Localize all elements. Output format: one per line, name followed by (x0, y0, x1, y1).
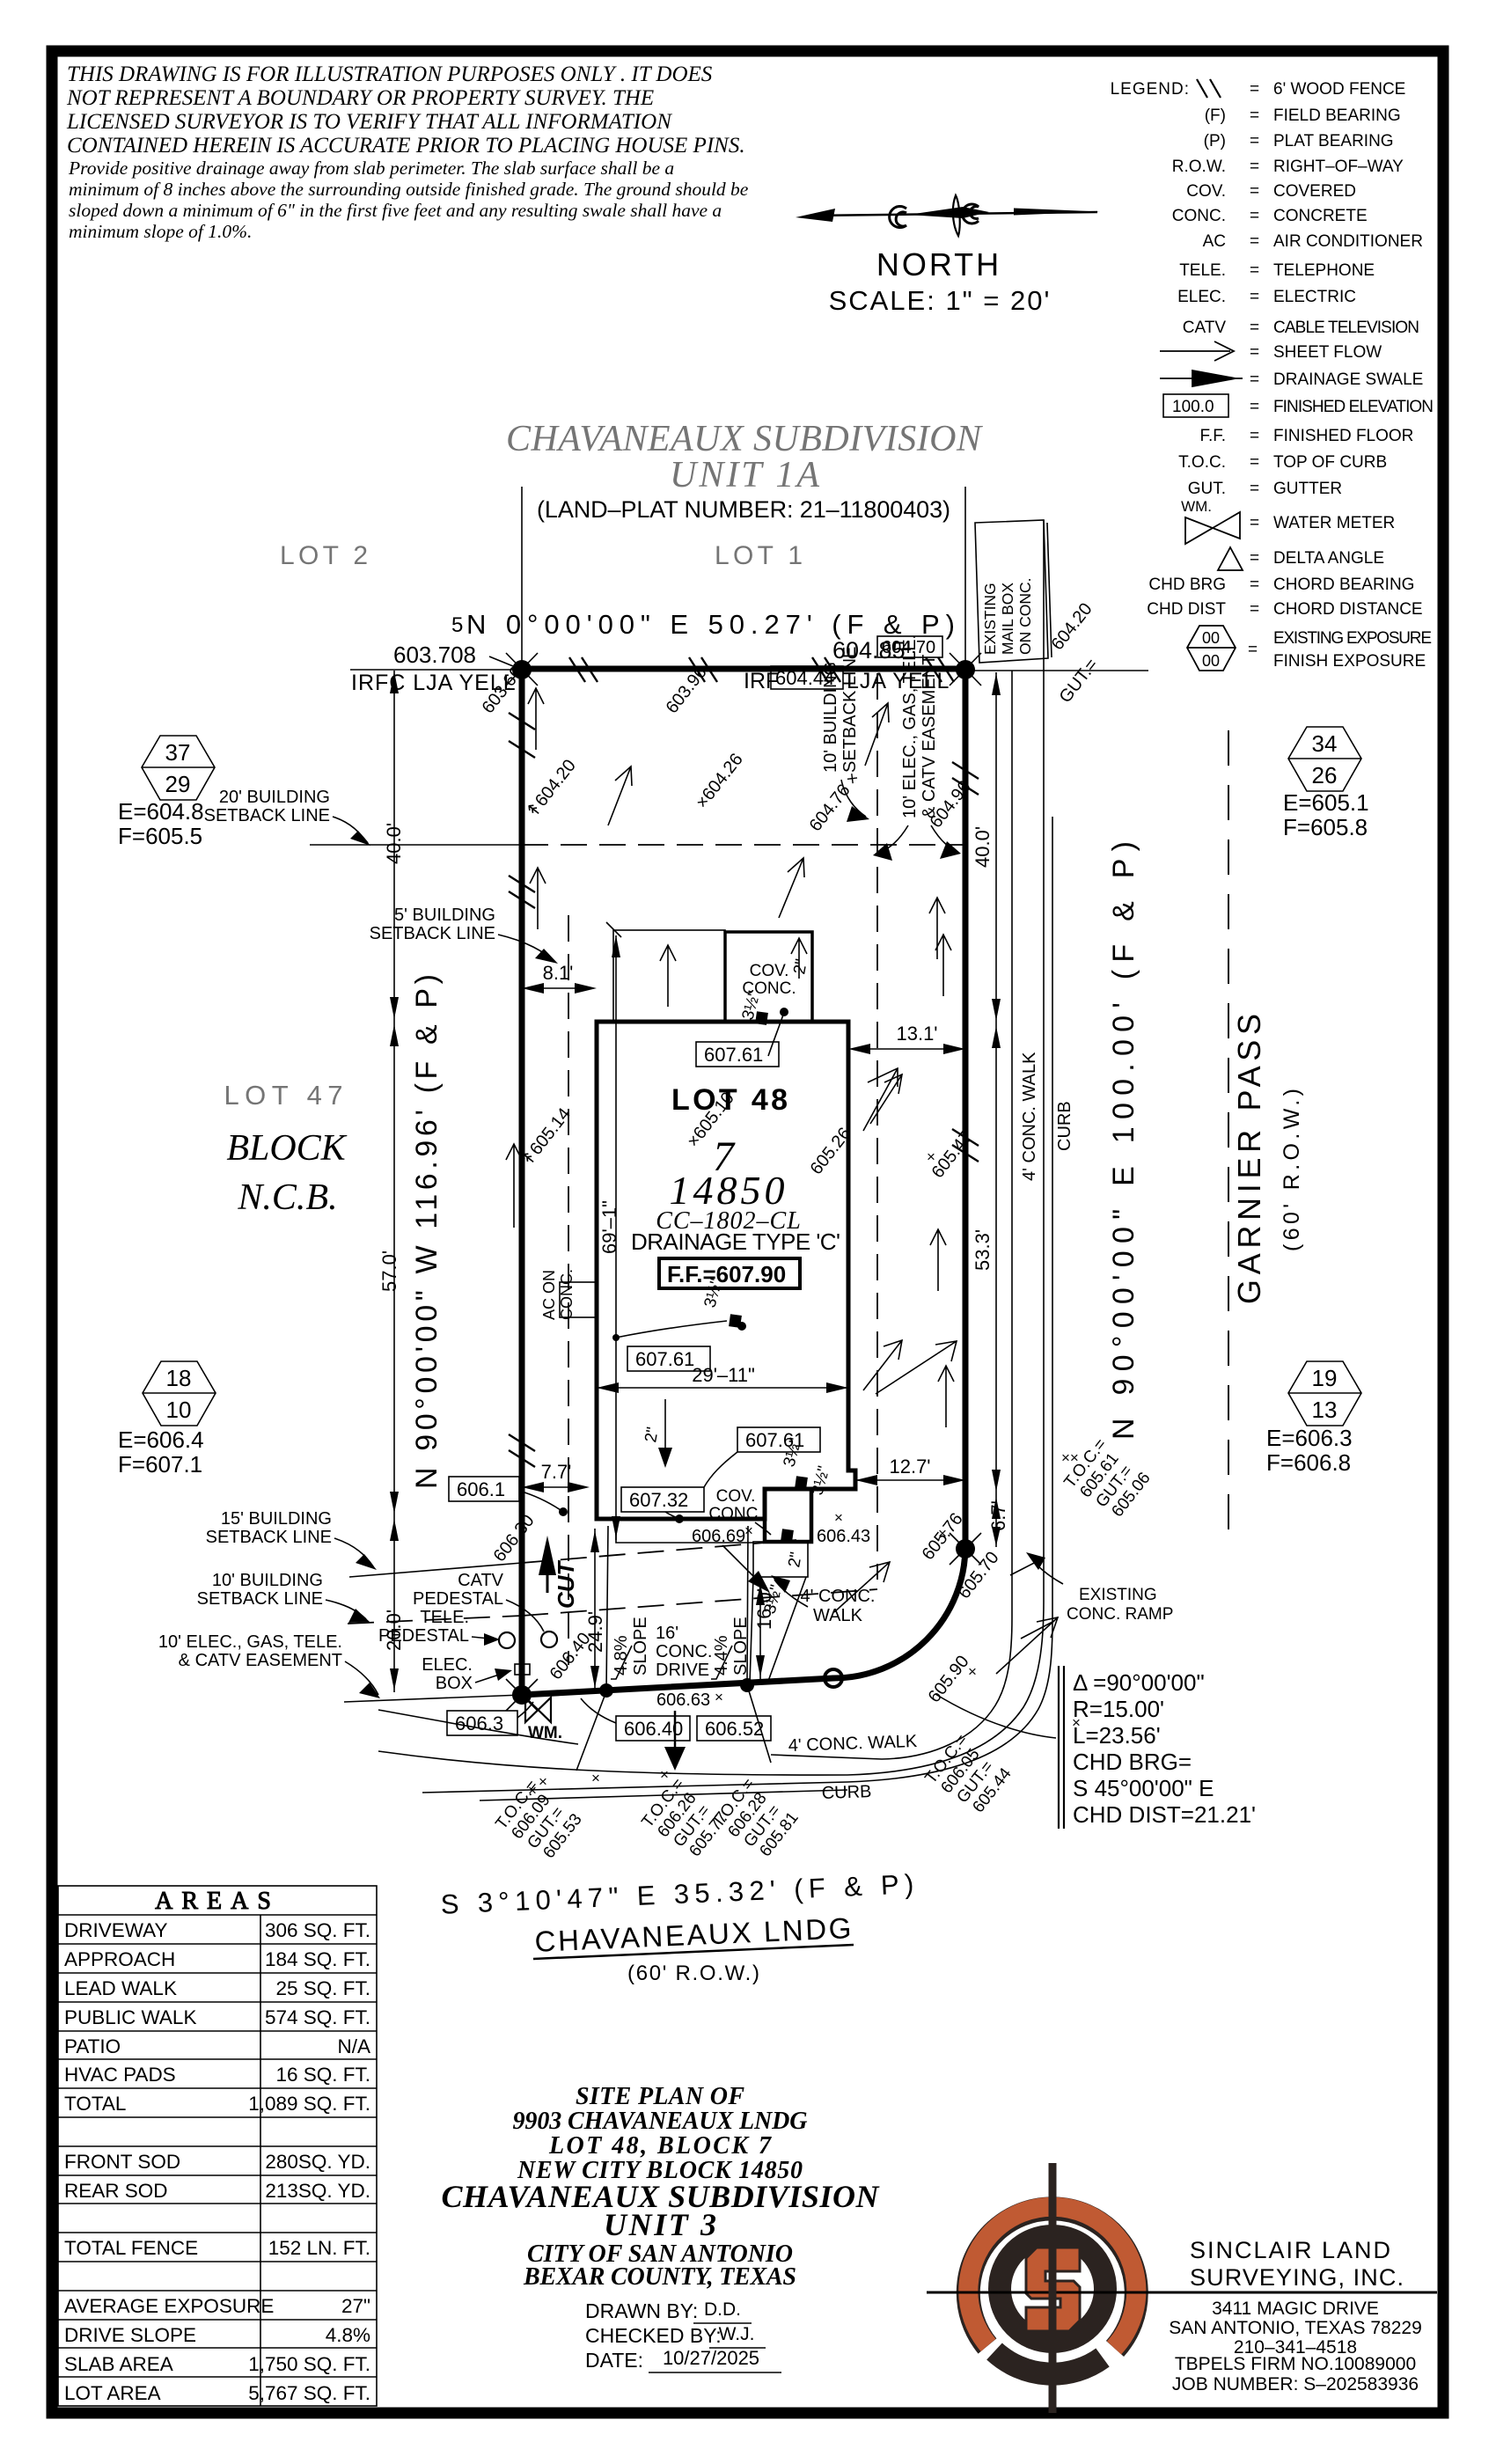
svg-text:×: × (927, 1148, 935, 1165)
svg-text:LEGEND:: LEGEND: (1111, 80, 1190, 99)
svg-text:AREAS: AREAS (155, 1888, 280, 1915)
svg-text:53.3': 53.3' (972, 1229, 994, 1271)
svg-text:TOP OF CURB: TOP OF CURB (1273, 453, 1387, 472)
svg-text:CHORD DISTANCE: CHORD DISTANCE (1273, 600, 1423, 619)
svg-text:606.43: 606.43 (817, 1527, 870, 1546)
svg-text:100.0: 100.0 (1172, 398, 1214, 416)
svg-text:69'–1": 69'–1" (598, 1200, 620, 1254)
svg-text:26: 26 (1312, 762, 1338, 788)
svg-text:606.63: 606.63 (656, 1690, 710, 1710)
svg-text:FINISH EXPOSURE: FINISH EXPOSURE (1273, 652, 1426, 671)
svg-text:CONC. RAMP: CONC. RAMP (1067, 1605, 1173, 1624)
svg-text:FINISHED FLOOR: FINISHED FLOOR (1273, 427, 1413, 445)
svg-text:(P): (P) (1204, 132, 1226, 150)
svg-text:L=23.56': L=23.56' (1073, 1722, 1161, 1749)
svg-text:=: = (1250, 514, 1259, 532)
svg-text:TELEPHONE: TELEPHONE (1273, 261, 1375, 280)
svg-text:CHAVANEAUX SUBDIVISION: CHAVANEAUX SUBDIVISION (506, 419, 983, 459)
svg-text:SITE PLAN OF: SITE PLAN OF (576, 2083, 744, 2110)
svg-text:SETBACK LINE: SETBACK LINE (206, 1528, 332, 1547)
svg-text:00: 00 (1202, 652, 1220, 670)
svg-text:16': 16' (656, 1624, 678, 1643)
svg-text:606.40: 606.40 (624, 1718, 683, 1740)
svg-text:W.J.: W.J. (719, 2324, 755, 2344)
svg-text:4.8%: 4.8% (326, 2324, 370, 2346)
svg-text:GARNIER PASS: GARNIER PASS (1231, 1014, 1267, 1304)
svg-text:TBPELS FIRM NO.10089000: TBPELS FIRM NO.10089000 (1175, 2354, 1416, 2374)
svg-text:LOT 2: LOT 2 (280, 541, 368, 570)
svg-text:=: = (1250, 427, 1259, 445)
svg-text:34: 34 (1312, 730, 1338, 757)
svg-text:00: 00 (1202, 629, 1220, 647)
svg-text:DRAINAGE TYPE 'C': DRAINAGE TYPE 'C' (631, 1228, 840, 1255)
svg-text:18: 18 (166, 1365, 192, 1391)
svg-text:TOTAL FENCE: TOTAL FENCE (64, 2237, 198, 2259)
svg-text:606.69: 606.69 (692, 1527, 745, 1546)
svg-text:=: = (1250, 288, 1259, 306)
svg-text:TOTAL: TOTAL (64, 2093, 126, 2115)
svg-text:607.32: 607.32 (629, 1489, 688, 1511)
svg-text:TELE.: TELE. (420, 1608, 469, 1627)
svg-text:280SQ. YD.: 280SQ. YD. (265, 2151, 370, 2173)
svg-text:F.F.=607.90: F.F.=607.90 (667, 1261, 786, 1287)
svg-text:CURB: CURB (1055, 1101, 1074, 1151)
svg-text:213SQ. YD.: 213SQ. YD. (265, 2180, 370, 2202)
svg-text:TELE.: TELE. (1179, 261, 1226, 280)
svg-text:FRONT SOD: FRONT SOD (64, 2151, 180, 2173)
svg-text:BLOCK: BLOCK (226, 1128, 347, 1169)
svg-text:603.708: 603.708 (393, 642, 476, 668)
svg-text:CONC.: CONC. (1172, 207, 1226, 225)
svg-text:E=605.1: E=605.1 (1283, 789, 1369, 816)
svg-text:minimum of 8 inches above the: minimum of 8 inches above the surroundin… (69, 179, 749, 200)
svg-text:F=606.8: F=606.8 (1266, 1449, 1351, 1476)
svg-text:DELTA ANGLE: DELTA ANGLE (1273, 549, 1384, 568)
svg-text:DATE:: DATE: (585, 2349, 643, 2372)
svg-text:×: × (528, 1782, 537, 1799)
svg-text:CATV: CATV (1183, 319, 1227, 337)
svg-text:& CATV EASEMENT: & CATV EASEMENT (179, 1651, 342, 1670)
svg-text:DRIVE SLOPE: DRIVE SLOPE (64, 2324, 196, 2346)
svg-text:19: 19 (1312, 1365, 1338, 1391)
svg-text:606.1: 606.1 (457, 1478, 505, 1500)
svg-text:=: = (1248, 641, 1258, 659)
svg-text:HVAC PADS: HVAC PADS (64, 2064, 176, 2086)
svg-text:CONC.: CONC. (558, 1269, 576, 1320)
svg-text:1,750 SQ. FT.: 1,750 SQ. FT. (248, 2353, 370, 2375)
svg-text:R.O.W.: R.O.W. (1172, 158, 1226, 176)
svg-text:CHD BRG=: CHD BRG= (1073, 1749, 1192, 1775)
svg-text:CABLE TELEVISION: CABLE TELEVISION (1273, 319, 1419, 337)
svg-text:5,767 SQ. FT.: 5,767 SQ. FT. (248, 2382, 370, 2404)
svg-text:CONTAINED HEREIN IS ACCURATE P: CONTAINED HEREIN IS ACCURATE PRIOR TO PL… (67, 134, 745, 158)
svg-text:606.3: 606.3 (455, 1712, 503, 1734)
svg-text:2": 2" (790, 957, 811, 976)
svg-text:CUT: CUT (553, 1559, 579, 1609)
svg-text:DRAINAGE SWALE: DRAINAGE SWALE (1273, 370, 1423, 389)
svg-text:WM.: WM. (1181, 498, 1212, 515)
svg-text:10' ELEC., GAS, TELE.: 10' ELEC., GAS, TELE. (900, 634, 920, 818)
svg-text:DRAWN BY:: DRAWN BY: (585, 2299, 698, 2322)
svg-text:THIS DRAWING IS FOR ILLUSTRATI: THIS DRAWING IS FOR ILLUSTRATION PURPOSE… (67, 62, 713, 86)
svg-text:CONCRETE: CONCRETE (1273, 207, 1368, 225)
svg-text:184 SQ. FT.: 184 SQ. FT. (265, 1948, 370, 1970)
svg-text:NORTH: NORTH (876, 246, 1001, 282)
svg-text:COVERED: COVERED (1273, 182, 1356, 201)
svg-text:××: ×× (1061, 1449, 1079, 1466)
svg-text:T.O.C.: T.O.C. (1178, 453, 1226, 472)
svg-text:FINISHED ELEVATION: FINISHED ELEVATION (1273, 398, 1434, 416)
svg-text:5' BUILDING: 5' BUILDING (394, 906, 495, 925)
svg-text:20.0': 20.0' (383, 1610, 405, 1651)
svg-text:FIELD BEARING: FIELD BEARING (1273, 106, 1401, 125)
svg-text:=: = (1250, 370, 1259, 389)
svg-text:2": 2" (642, 1426, 663, 1444)
svg-text:×: × (834, 1509, 843, 1526)
svg-text:×: × (968, 1663, 977, 1680)
svg-text:AIR CONDITIONER: AIR CONDITIONER (1273, 232, 1423, 251)
svg-text:5: 5 (451, 613, 463, 637)
svg-text:=: = (1250, 182, 1259, 201)
svg-text:=: = (1250, 398, 1259, 416)
svg-text:9903 CHAVANEAUX LNDG: 9903 CHAVANEAUX LNDG (513, 2108, 808, 2135)
svg-text:BEXAR COUNTY, TEXAS: BEXAR COUNTY, TEXAS (523, 2263, 796, 2291)
svg-text:16.0': 16.0' (753, 1588, 775, 1630)
svg-text:N.C.B.: N.C.B. (237, 1177, 337, 1218)
svg-text:(60' R.O.W.): (60' R.O.W.) (627, 1962, 759, 1985)
svg-text:10' ELEC., GAS, TELE.: 10' ELEC., GAS, TELE. (158, 1632, 342, 1652)
svg-text:20' BUILDING: 20' BUILDING (219, 788, 330, 807)
svg-text:7.7': 7.7' (541, 1461, 572, 1483)
svg-text:=: = (1250, 106, 1259, 125)
svg-text:minimum slope of 1.0%.: minimum slope of 1.0%. (69, 221, 252, 242)
svg-text:E=606.4: E=606.4 (118, 1426, 204, 1453)
svg-text:SLAB AREA: SLAB AREA (64, 2353, 173, 2375)
svg-text:Δ =90°00'00": Δ =90°00'00" (1073, 1669, 1205, 1696)
svg-text:27": 27" (341, 2295, 370, 2317)
svg-text:F=605.5: F=605.5 (118, 823, 202, 849)
svg-text:BOX: BOX (436, 1674, 473, 1693)
svg-text:4' CONC.: 4' CONC. (801, 1587, 876, 1606)
svg-text:PATIO: PATIO (64, 2035, 121, 2057)
svg-text:15' BUILDING: 15' BUILDING (221, 1509, 332, 1529)
svg-text:ELECTRIC: ELECTRIC (1273, 288, 1356, 306)
svg-text:SAN ANTONIO, TEXAS 78229: SAN ANTONIO, TEXAS 78229 (1169, 2318, 1422, 2338)
svg-text:S 45°00'00" E: S 45°00'00" E (1073, 1775, 1214, 1801)
svg-text:LOT 1: LOT 1 (715, 541, 803, 570)
svg-text:EXISTING: EXISTING (1079, 1586, 1157, 1604)
svg-text:CATV: CATV (458, 1571, 504, 1590)
svg-text:PUBLIC WALK: PUBLIC WALK (64, 2006, 196, 2028)
svg-text:13: 13 (1312, 1397, 1338, 1423)
svg-text:SLOPE: SLOPE (631, 1617, 650, 1676)
svg-text:ELEC.: ELEC. (1177, 288, 1226, 306)
svg-text:SCALE: 1" = 20': SCALE: 1" = 20' (829, 285, 1052, 316)
svg-text:R=15.00': R=15.00' (1073, 1696, 1164, 1722)
svg-text:ON CONC.: ON CONC. (1016, 578, 1034, 656)
svg-text:F=607.1: F=607.1 (118, 1451, 202, 1478)
svg-text:REAR SOD: REAR SOD (64, 2180, 168, 2202)
svg-text:=: = (1250, 80, 1259, 99)
svg-text:E=604.8: E=604.8 (118, 798, 204, 825)
svg-text:607.61: 607.61 (635, 1348, 694, 1370)
svg-text:N/A: N/A (337, 2035, 370, 2057)
svg-text:=: = (1250, 343, 1259, 362)
svg-text:LOT AREA: LOT AREA (64, 2382, 161, 2404)
svg-text:607.61: 607.61 (704, 1044, 763, 1066)
svg-text:10: 10 (166, 1397, 192, 1423)
svg-text:APPROACH: APPROACH (64, 1948, 175, 1970)
svg-text:F.F.: F.F. (1199, 427, 1226, 445)
svg-text:NOT REPRESENT A BOUNDARY OR PR: NOT REPRESENT A BOUNDARY OR PROPERTY SUR… (66, 86, 654, 110)
svg-text:=: = (1250, 132, 1259, 150)
svg-text:UNIT 1A: UNIT 1A (670, 455, 819, 495)
svg-text:=: = (1250, 207, 1259, 225)
svg-text:PEDESTAL: PEDESTAL (413, 1589, 503, 1609)
svg-text:WATER METER: WATER METER (1273, 514, 1395, 532)
svg-text:LEAD WALK: LEAD WALK (64, 1977, 177, 1999)
svg-text:3411 MAGIC DRIVE: 3411 MAGIC DRIVE (1212, 2299, 1379, 2319)
svg-text:10' BUILDING: 10' BUILDING (821, 662, 840, 773)
svg-text:JOB NUMBER: S–202583936: JOB NUMBER: S–202583936 (1172, 2374, 1419, 2394)
svg-text:SURVEYING, INC.: SURVEYING, INC. (1190, 2264, 1404, 2291)
svg-text:CONC.: CONC. (656, 1642, 712, 1661)
svg-text:40.0': 40.0' (972, 826, 994, 868)
svg-text:SETBACK LINE: SETBACK LINE (197, 1589, 323, 1609)
svg-text:AC ON: AC ON (540, 1270, 558, 1320)
svg-text:MAIL BOX: MAIL BOX (999, 583, 1016, 655)
svg-text:LICENSED SURVEYOR IS TO VERIFY: LICENSED SURVEYOR IS TO VERIFY THAT ALL … (66, 110, 672, 134)
svg-text:=: = (1250, 480, 1259, 498)
svg-text:=: = (1250, 600, 1259, 619)
svg-text:GUTTER: GUTTER (1273, 480, 1342, 498)
svg-text:DRIVEWAY: DRIVEWAY (64, 1919, 168, 1941)
svg-text:6.7': 6.7' (987, 1500, 1009, 1531)
svg-text:57.0': 57.0' (378, 1250, 400, 1292)
svg-text:SINCLAIR LAND: SINCLAIR LAND (1190, 2237, 1390, 2263)
svg-text:ELEC.: ELEC. (422, 1655, 473, 1675)
svg-text:(LAND–PLAT NUMBER: 21–118004: (LAND–PLAT NUMBER: 21–11800403) (537, 496, 950, 523)
svg-text:SLOPE: SLOPE (731, 1617, 751, 1676)
svg-text:×: × (938, 1525, 947, 1542)
svg-text:37: 37 (165, 739, 191, 766)
svg-text:12.7': 12.7' (889, 1456, 930, 1478)
svg-text:6' WOOD FENCE: 6' WOOD FENCE (1273, 80, 1405, 99)
svg-text:sloped down a minimum of 6" in: sloped down a minimum of 6" in the first… (69, 200, 722, 221)
svg-text:SHEET FLOW: SHEET FLOW (1273, 343, 1382, 362)
svg-text:EXISTING: EXISTING (981, 583, 999, 655)
svg-text:LOT 48, BLOCK 7: LOT 48, BLOCK 7 (548, 2132, 772, 2160)
svg-text:8.1': 8.1' (543, 962, 574, 984)
svg-text:×: × (715, 1689, 723, 1705)
svg-text:=: = (1250, 261, 1259, 280)
svg-text:29'–11": 29'–11" (692, 1364, 755, 1386)
svg-text:CHORD BEARING: CHORD BEARING (1273, 576, 1414, 594)
svg-text:10/27/2025: 10/27/2025 (663, 2347, 759, 2369)
svg-text:=: = (1250, 576, 1259, 594)
svg-text:AVERAGE EXPOSURE: AVERAGE EXPOSURE (64, 2295, 274, 2317)
svg-text:COV.: COV. (716, 1487, 756, 1506)
svg-text:40.0': 40.0' (383, 823, 405, 864)
svg-text:SETBACK LINE: SETBACK LINE (370, 924, 495, 943)
svg-text:14850: 14850 (670, 1168, 788, 1213)
svg-text:4' CONC. WALK: 4' CONC. WALK (1020, 1052, 1039, 1181)
svg-text:×: × (660, 1766, 669, 1783)
svg-text:COV.: COV. (1186, 182, 1226, 201)
svg-text:CHD DIST: CHD DIST (1147, 600, 1226, 619)
svg-text:DRIVE: DRIVE (656, 1661, 709, 1680)
svg-text:SETBACK LINE: SETBACK LINE (840, 647, 860, 773)
svg-text:WALK: WALK (813, 1606, 863, 1625)
svg-text:RIGHT–OF–WAY: RIGHT–OF–WAY (1273, 158, 1404, 176)
svg-text:F=605.8: F=605.8 (1283, 814, 1368, 840)
svg-text:16 SQ. FT.: 16 SQ. FT. (275, 2064, 370, 2086)
svg-text:152 LN. FT.: 152 LN. FT. (268, 2237, 370, 2259)
svg-text:CHD DIST=21.21': CHD DIST=21.21' (1073, 1801, 1256, 1828)
svg-text:25 SQ. FT.: 25 SQ. FT. (275, 1977, 370, 1999)
svg-text:2": 2" (785, 1551, 806, 1569)
svg-text:CHD BRG: CHD BRG (1148, 576, 1226, 594)
svg-text:PLAT BEARING: PLAT BEARING (1273, 132, 1394, 150)
svg-text:10' BUILDING: 10' BUILDING (212, 1571, 323, 1590)
svg-text:=: = (1250, 319, 1259, 337)
svg-text:CHECKED BY:: CHECKED BY: (585, 2324, 722, 2347)
svg-text:306 SQ. FT.: 306 SQ. FT. (265, 1919, 370, 1941)
svg-text:×: × (539, 1773, 547, 1790)
svg-text:1,089 SQ. FT.: 1,089 SQ. FT. (248, 2093, 370, 2115)
svg-text:CURB: CURB (821, 1782, 871, 1803)
svg-text:AC: AC (1203, 232, 1226, 251)
svg-text:29: 29 (165, 771, 191, 797)
svg-text:=: = (1250, 549, 1259, 568)
svg-text:COV.: COV. (750, 962, 789, 980)
svg-text:& CATV EASEMENT: & CATV EASEMENT (920, 655, 939, 818)
svg-text:WM.: WM. (528, 1724, 562, 1742)
svg-text:606.52: 606.52 (705, 1718, 764, 1740)
svg-text:EXISTING EXPOSURE: EXISTING EXPOSURE (1273, 629, 1432, 648)
svg-text:(F): (F) (1205, 106, 1226, 125)
svg-text:CONC.: CONC. (708, 1505, 762, 1523)
svg-text:=: = (1250, 158, 1259, 176)
svg-text:574 SQ. FT.: 574 SQ. FT. (265, 2006, 370, 2028)
svg-text:×: × (591, 1770, 600, 1786)
svg-text:Provide positive drainage away: Provide positive drainage away from slab… (68, 158, 674, 179)
svg-text:=: = (1250, 453, 1259, 472)
svg-text:=: = (1250, 232, 1259, 251)
svg-text:GUT.: GUT. (1188, 480, 1226, 498)
svg-text:×: × (744, 1522, 753, 1539)
svg-text:13.1': 13.1' (896, 1023, 937, 1045)
svg-text:E=606.3: E=606.3 (1266, 1425, 1353, 1451)
svg-text:D.D.: D.D. (704, 2299, 741, 2320)
svg-text:SETBACK LINE: SETBACK LINE (204, 806, 330, 825)
